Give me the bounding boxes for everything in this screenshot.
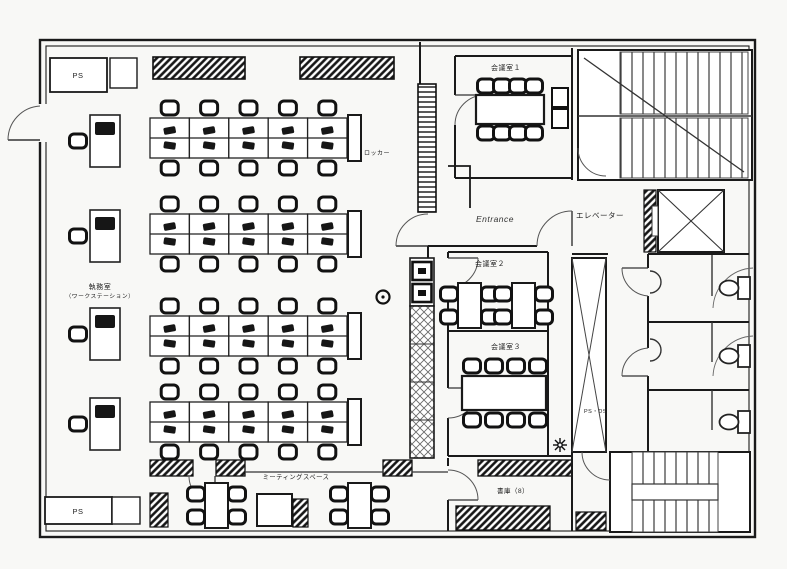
stair-landing: [632, 484, 718, 500]
stair-treads: [620, 52, 748, 114]
meeting-room-2-label: 会議室２: [475, 259, 505, 268]
toilet-door-arc: [622, 268, 648, 296]
meeting1-table: [476, 95, 544, 124]
entrance-label: Entrance: [476, 214, 514, 224]
ps-room-top: PS: [50, 58, 137, 92]
cabinet: [576, 512, 606, 530]
workstation-area: [150, 101, 361, 459]
meeting-room-1-label: 会議室１: [491, 63, 521, 72]
sideboard: [552, 109, 568, 128]
stair-door-arc: [582, 452, 610, 480]
bookshelf: [456, 506, 550, 530]
stair-treads: [632, 500, 718, 532]
meeting-room-1: 会議室１: [455, 48, 572, 180]
top-cabinets: [153, 57, 394, 79]
cabinet: [150, 493, 168, 527]
entrance-door-arc: [537, 211, 572, 246]
meeting-room-3: 会議室３: [448, 342, 567, 452]
shaft-label: PS・DS: [584, 409, 607, 415]
storage-room-label: 書庫（8）: [497, 486, 529, 495]
elevator-hall: エレベーター: [572, 190, 749, 254]
stairwell-top: [578, 50, 752, 180]
meeting3-table: [462, 376, 546, 410]
meeting-space: ミーティングスペース: [150, 460, 448, 528]
elevator-door: [652, 206, 658, 236]
sideboard: [552, 88, 568, 107]
plant-symbol: [553, 438, 567, 452]
stairwell-bottom: [572, 452, 750, 532]
office-door-arc: [396, 214, 428, 246]
meeting-space-label: ミーティングスペース: [263, 472, 330, 481]
floor-plan-drawing: PS PS 執務室 （ワークステーション） ロッカー: [0, 0, 787, 569]
cabinet: [293, 499, 308, 527]
elevator-label: エレベーター: [576, 211, 624, 220]
stair-treads: [632, 452, 718, 484]
wall-desks: 執務室 （ワークステーション）: [66, 115, 135, 450]
meeting-room-3-label: 会議室３: [491, 342, 521, 351]
low-table: [257, 494, 292, 526]
floor-plan-scan: PS PS 執務室 （ワークステーション） ロッカー: [0, 0, 787, 569]
storage-door-arc: [448, 470, 478, 500]
bookshelf: [478, 460, 572, 476]
storage-room: 書庫（8）: [448, 456, 572, 531]
locker-label: ロッカー: [364, 150, 390, 157]
center-shelf: [377, 258, 435, 458]
ps-room-bottom: PS: [45, 497, 140, 524]
toilet-block: PS・DS: [572, 254, 753, 452]
toilet-door-arc: [622, 348, 648, 376]
stair-treads: [620, 118, 748, 178]
office-area-label-2: （ワークステーション）: [66, 293, 135, 300]
washbasin: [650, 271, 661, 293]
left-door-gap: [34, 104, 50, 142]
ps-bottom-label: PS: [72, 507, 83, 516]
washbasin: [650, 339, 661, 361]
office-area-label-1: 執務室: [89, 282, 112, 291]
ps-top-label: PS: [72, 71, 83, 80]
